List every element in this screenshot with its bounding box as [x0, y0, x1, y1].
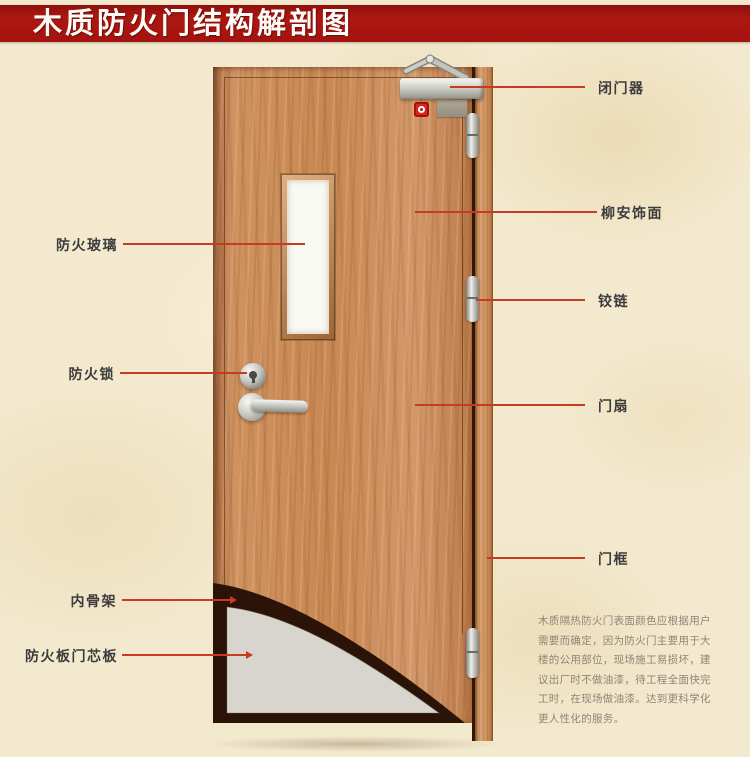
description-line: 楼的公用部位，现场施工易损坏，建: [538, 651, 714, 671]
label-inner-skeleton: 内骨架: [71, 591, 118, 611]
hinge-top: [466, 113, 479, 158]
description-line: 更人性化的服务。: [538, 710, 714, 730]
door-shadow: [205, 736, 505, 752]
callout-line-fire-lock: [120, 372, 247, 374]
label-fire-glass: 防火玻璃: [56, 235, 118, 255]
page-title: 木质防火门结构解剖图: [0, 5, 750, 43]
callout-arrow-inner-skeleton: [230, 596, 237, 604]
handle-lever: [251, 399, 308, 412]
door-leaf-inset-outline: [224, 77, 463, 634]
callout-line-door-frame: [487, 557, 585, 559]
fire-lock-cylinder: [240, 363, 266, 389]
description-line: 工时，在现场做油漆。达到更科学化: [538, 690, 714, 710]
glass-pane: [287, 180, 329, 334]
callout-line-fire-board-core: [122, 654, 246, 656]
description-line: 需要而确定，因为防火门主要用于大: [538, 632, 714, 652]
hinge-bottom: [466, 628, 479, 678]
callout-line-inner-skeleton: [122, 599, 230, 601]
fire-glass-window: [281, 174, 335, 340]
callout-line-hinge: [476, 299, 585, 301]
label-door-leaf: 门扇: [598, 396, 629, 416]
hinge-pin: [467, 134, 478, 136]
hinge-pin: [467, 651, 478, 653]
door-closer-body: [400, 78, 483, 99]
alarm-indicator: [414, 102, 429, 117]
label-door-closer: 闭门器: [598, 78, 645, 98]
label-fire-board-core: 防火板门芯板: [25, 646, 118, 666]
fire-board-core-panel: [227, 607, 439, 713]
callout-line-door-closer: [450, 86, 585, 88]
label-fire-lock: 防火锁: [69, 364, 116, 384]
alarm-ring: [418, 106, 425, 113]
callout-line-fire-glass: [123, 243, 305, 245]
label-lauan-veneer: 柳安饰面: [601, 203, 663, 223]
poster: 木质防火门结构解剖图: [0, 0, 750, 757]
description-text: 木质隔热防火门表面颜色应根据用户 需要而确定，因为防火门主要用于大 楼的公用部位…: [538, 612, 714, 729]
cutaway-section: [213, 577, 472, 723]
callout-line-lauan-veneer: [415, 211, 597, 213]
label-door-frame: 门框: [598, 549, 629, 569]
callout-arrow-fire-board-core: [246, 651, 253, 659]
keyhole-stem: [252, 377, 255, 383]
description-line: 议出厂时不做油漆，待工程全面快完: [538, 671, 714, 691]
title-banner: 木质防火门结构解剖图: [0, 5, 750, 42]
label-patch: [437, 100, 467, 117]
callout-line-door-leaf: [415, 404, 585, 406]
label-hinge: 铰链: [598, 291, 629, 311]
description-line: 木质隔热防火门表面颜色应根据用户: [538, 612, 714, 632]
alarm-dot: [420, 108, 423, 111]
